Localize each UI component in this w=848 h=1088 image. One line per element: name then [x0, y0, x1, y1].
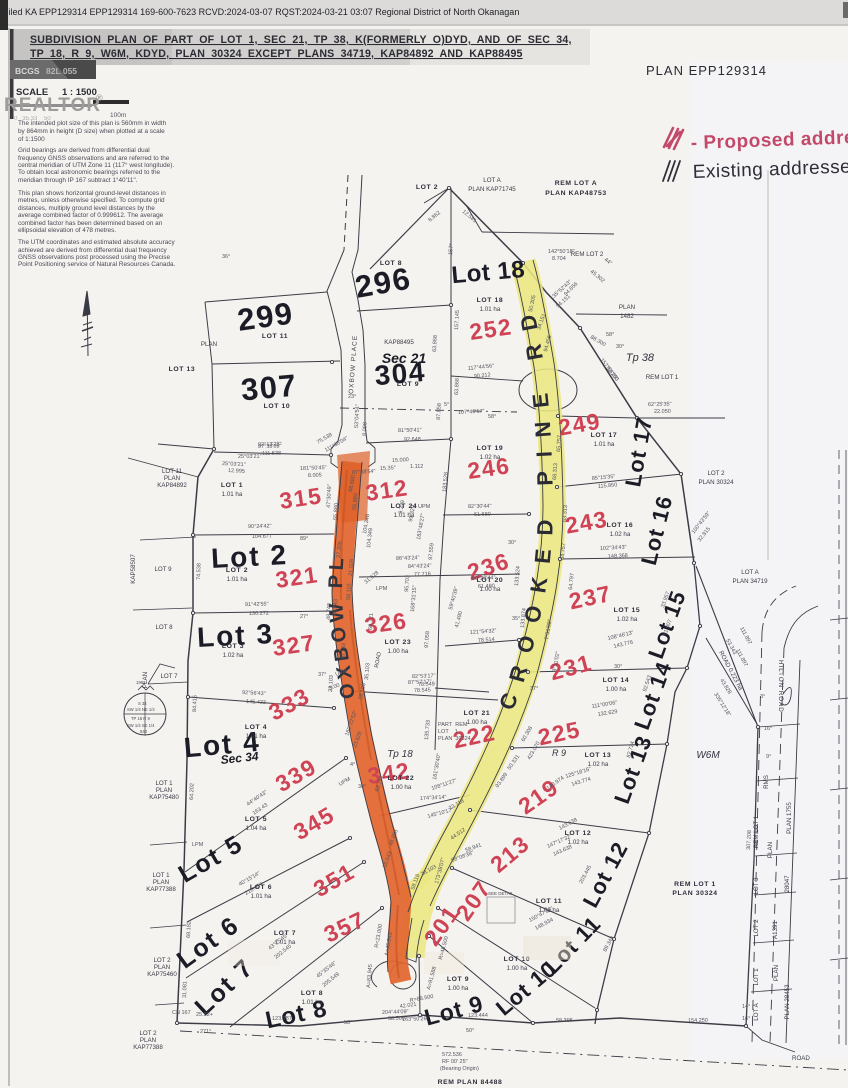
svg-text:82°53'17": 82°53'17" [412, 673, 436, 680]
svg-text:81°50'41": 81°50'41" [398, 428, 422, 434]
svg-text:UPM: UPM [418, 504, 431, 510]
svg-text:307.208: 307.208 [746, 830, 753, 850]
svg-text:181°50'45": 181°50'45" [300, 465, 327, 472]
svg-text:PLAN 34719: PLAN 34719 [732, 578, 768, 585]
svg-text:LOT 10: LOT 10 [264, 403, 291, 410]
svg-text:LPM: LPM [376, 586, 388, 592]
svg-text:PLAN: PLAN [773, 965, 780, 981]
svg-text:LOT 9: LOT 9 [397, 381, 419, 388]
svg-text:154.250: 154.250 [688, 1018, 708, 1024]
svg-text:74.538: 74.538 [196, 563, 203, 580]
svg-text:16°: 16° [764, 726, 772, 732]
svg-text:148.368: 148.368 [608, 553, 628, 560]
svg-text:78.545: 78.545 [414, 687, 431, 694]
svg-text:1.04 ha: 1.04 ha [246, 825, 267, 832]
svg-text:86°43'24": 86°43'24" [396, 555, 420, 562]
svg-text:GNSS observations post process: GNSS observations post processed using t… [18, 254, 170, 261]
svg-text:CN 167: CN 167 [172, 1010, 191, 1016]
svg-text:LOT 5: LOT 5 [245, 816, 267, 823]
svg-text:The intended plot size of this: The intended plot size of this plan is 5… [18, 120, 167, 127]
svg-text:37°: 37° [530, 686, 538, 692]
svg-text:90°20'44": 90°20'44" [472, 575, 496, 582]
svg-text:PLAN: PLAN [164, 475, 180, 482]
svg-text:15.35°: 15.35° [380, 465, 396, 472]
svg-text:LOT 15: LOT 15 [614, 607, 641, 614]
svg-text:66.721: 66.721 [368, 613, 375, 630]
svg-text:65.757: 65.757 [556, 435, 563, 452]
svg-text:9°: 9° [766, 754, 771, 760]
svg-text:PLAN 30324: PLAN 30324 [438, 736, 471, 742]
svg-text:3°: 3° [760, 694, 765, 700]
svg-text:61.490: 61.490 [478, 583, 495, 590]
svg-text:142°50'18": 142°50'18" [548, 249, 575, 255]
svg-text:1.02 ha: 1.02 ha [617, 616, 638, 623]
svg-text:LOT 13: LOT 13 [169, 366, 196, 373]
svg-text:4°: 4° [350, 762, 355, 768]
svg-text:LOT A: LOT A [741, 569, 759, 576]
svg-text:87.858: 87.858 [436, 403, 443, 420]
svg-text:91°42'55": 91°42'55" [245, 602, 269, 608]
svg-text:LOT 1: LOT 1 [155, 780, 173, 787]
svg-text:47°30'49": 47°30'49" [326, 484, 333, 508]
svg-text:307: 307 [240, 368, 299, 408]
svg-text:PLAN 30324: PLAN 30324 [672, 890, 717, 897]
svg-text:271°: 271° [200, 1029, 211, 1035]
svg-text:PLAN: PLAN [156, 787, 172, 794]
svg-text:1.01 ha: 1.01 ha [251, 893, 272, 900]
svg-text:LOT 17: LOT 17 [591, 432, 618, 439]
svg-text:To obtain local astronomic bea: To obtain local astronomic bearings refe… [18, 169, 161, 176]
svg-text:KAP75460: KAP75460 [147, 971, 177, 978]
svg-text:63.868: 63.868 [454, 378, 461, 395]
svg-text:78.514: 78.514 [478, 637, 495, 644]
svg-text:1.00 ha: 1.00 ha [391, 784, 412, 791]
svg-text:1.01 ha: 1.01 ha [227, 576, 248, 583]
svg-text:1.02 ha: 1.02 ha [480, 454, 501, 461]
svg-text:22.050: 22.050 [654, 409, 671, 415]
svg-text:LOT A: LOT A [753, 1002, 760, 1020]
svg-text:LOT 11: LOT 11 [162, 468, 183, 475]
svg-text:84.415: 84.415 [192, 695, 199, 712]
svg-text:REM LOT 1: REM LOT 1 [674, 881, 716, 888]
svg-text:23°: 23° [348, 394, 356, 400]
svg-text:LOT 21: LOT 21 [464, 710, 491, 717]
svg-text:KAP88495: KAP88495 [384, 339, 414, 346]
svg-text:LOT 23: LOT 23 [385, 639, 412, 646]
svg-text:58.110: 58.110 [346, 583, 353, 600]
svg-text:PLAN KAP71745: PLAN KAP71745 [468, 186, 516, 193]
svg-text:157°: 157° [448, 243, 455, 255]
svg-text:1.01 ha: 1.01 ha [480, 306, 501, 313]
svg-text:KAP77388: KAP77388 [133, 1044, 163, 1051]
svg-text:53°: 53° [344, 1020, 352, 1026]
svg-text:HILTON ROAD: HILTON ROAD [777, 660, 784, 713]
svg-text:LOT 8: LOT 8 [301, 990, 323, 997]
svg-text:A1391: A1391 [772, 921, 779, 939]
svg-text:REM LOT 1: REM LOT 1 [646, 374, 679, 381]
svg-text:36°: 36° [222, 254, 230, 260]
svg-text:1.00 ha: 1.00 ha [448, 985, 469, 992]
svg-text:1.01 ha: 1.01 ha [302, 999, 323, 1006]
svg-text:LOT 2: LOT 2 [153, 957, 171, 964]
svg-text:LOT 1: LOT 1 [221, 482, 243, 489]
svg-text:58°: 58° [488, 414, 496, 420]
svg-text:1.00 ha: 1.00 ha [388, 648, 409, 655]
svg-text:REM LOT 1: REM LOT 1 [753, 815, 760, 848]
svg-text:100m: 100m [110, 112, 126, 119]
svg-text:68.313: 68.313 [552, 463, 559, 480]
svg-text:1.02 ha: 1.02 ha [610, 531, 631, 538]
svg-text:PLAN: PLAN [619, 304, 635, 311]
svg-text:SUBDIVISION PLAN OF PART OF LO: SUBDIVISION PLAN OF PART OF LOT 1, SEC 2… [30, 34, 572, 46]
svg-text:KAP84892: KAP84892 [157, 482, 187, 489]
svg-text:1.112: 1.112 [410, 464, 423, 470]
svg-text:LOT 4: LOT 4 [245, 724, 267, 731]
svg-text:8.005: 8.005 [308, 473, 322, 479]
svg-text:LOT 1: LOT 1 [753, 968, 760, 986]
svg-text:LOT 2: LOT 2 [139, 1030, 157, 1037]
svg-text:LOT 3: LOT 3 [222, 643, 244, 650]
svg-text:LOT 13: LOT 13 [585, 752, 612, 759]
svg-text:LOT 11: LOT 11 [536, 898, 562, 905]
svg-text:RF 00' 25": RF 00' 25" [442, 1059, 468, 1065]
svg-text:82°30'44": 82°30'44" [468, 504, 492, 510]
svg-text:average combined factor of 0.9: average combined factor of 0.999612. The… [18, 212, 164, 219]
svg-text:TP 18 R 9: TP 18 R 9 [131, 716, 150, 721]
svg-text:8.098: 8.098 [362, 422, 369, 436]
svg-text:The UTM coordinates and estima: The UTM coordinates and estimated absolu… [18, 239, 175, 246]
svg-text:REALTOR: REALTOR [4, 95, 101, 116]
svg-text:35°: 35° [512, 616, 520, 622]
svg-text:PLAN: PLAN [142, 672, 149, 688]
svg-text:LOT 2: LOT 2 [707, 470, 725, 477]
svg-text:64.202: 64.202 [189, 783, 196, 800]
svg-text:LOT 7: LOT 7 [160, 673, 178, 680]
svg-text:1.00 ha: 1.00 ha [467, 719, 488, 726]
svg-text:1.02 ha: 1.02 ha [223, 652, 244, 659]
svg-text:This plan shows horizontal gro: This plan shows horizontal ground-level … [18, 190, 166, 197]
svg-text:62°25'35": 62°25'35" [648, 402, 672, 408]
svg-text:PLAN 30324: PLAN 30324 [698, 479, 734, 486]
svg-text:LOT 11: LOT 11 [262, 333, 288, 340]
svg-text:14°: 14° [742, 1004, 750, 1010]
svg-text:1.02 ha: 1.02 ha [588, 761, 609, 768]
svg-text:PLAN: PLAN [767, 842, 774, 858]
svg-text:123.444: 123.444 [468, 1013, 488, 1019]
svg-text:840: 840 [140, 729, 148, 734]
svg-text:25°03'21": 25°03'21" [238, 454, 262, 460]
svg-text:Grid bearings are derived from: Grid bearings are derived from different… [18, 147, 150, 154]
svg-text:5°: 5° [444, 402, 449, 408]
svg-text:PLAN: PLAN [154, 964, 170, 971]
svg-text:30°: 30° [614, 664, 622, 670]
svg-text:LPM: LPM [192, 842, 204, 848]
svg-text:63.868: 63.868 [432, 335, 439, 352]
svg-text:84°43'24": 84°43'24" [408, 563, 432, 570]
svg-text:25.32+: 25.32+ [196, 1012, 213, 1018]
svg-text:111.538: 111.538 [262, 451, 281, 457]
svg-text:LOT 19: LOT 19 [477, 445, 504, 452]
svg-text:KAP58507: KAP58507 [130, 554, 137, 584]
svg-text:LOT 2: LOT 2 [753, 919, 760, 937]
svg-text:PART REM: PART REM [438, 722, 468, 728]
svg-text:LOT 1: LOT 1 [438, 729, 458, 735]
svg-text:123.787: 123.787 [272, 1016, 292, 1022]
svg-text:SW 1/4 NE 1/4: SW 1/4 NE 1/4 [127, 707, 155, 712]
svg-text:LOT 2: LOT 2 [416, 184, 438, 191]
svg-text:PLAN KAP48753: PLAN KAP48753 [545, 190, 606, 197]
svg-text:TP 18, R 9, W6M, KDYD, PLAN 30: TP 18, R 9, W6M, KDYD, PLAN 30324 EXCEPT… [30, 48, 523, 60]
svg-text:®: ® [96, 93, 103, 103]
svg-text:LOT 22: LOT 22 [388, 775, 415, 782]
svg-text:LOT 9: LOT 9 [154, 566, 172, 573]
svg-text:LOT A: LOT A [483, 177, 501, 184]
svg-text:LOT 9: LOT 9 [447, 976, 469, 983]
svg-text:25°03'21": 25°03'21" [222, 461, 246, 468]
svg-text:157.145: 157.145 [454, 310, 461, 330]
svg-text:204°44'09": 204°44'09" [382, 1009, 409, 1016]
svg-text:30°: 30° [358, 784, 366, 790]
svg-text:BCGS: BCGS [15, 66, 40, 76]
svg-text:1.01 ha: 1.01 ha [246, 733, 267, 740]
svg-text:Sec 21: Sec 21 [382, 350, 427, 366]
svg-text:PLAN: PLAN [140, 1037, 156, 1044]
svg-text:combined factor has been deter: combined factor has been determined base… [18, 220, 163, 227]
svg-text:8.704: 8.704 [552, 256, 566, 262]
svg-text:by 864mm in height (D size) wh: by 864mm in height (D size) when plotted… [18, 128, 165, 135]
svg-text:LOT 14: LOT 14 [603, 677, 630, 684]
svg-text:145.433: 145.433 [246, 699, 266, 706]
svg-text:104.677: 104.677 [252, 534, 272, 540]
svg-text:SW 1/4 SE 1/4: SW 1/4 SE 1/4 [127, 723, 155, 728]
svg-text:58°: 58° [606, 332, 614, 338]
svg-text:REM PLAN 84488: REM PLAN 84488 [438, 1079, 503, 1086]
svg-text:PLAN: PLAN [153, 879, 169, 886]
svg-text:R 9: R 9 [552, 748, 566, 758]
svg-text:LOT 18: LOT 18 [477, 297, 504, 304]
svg-text:55.880: 55.880 [333, 503, 340, 520]
svg-text:PLAN 1755: PLAN 1755 [786, 802, 793, 834]
svg-text:50°: 50° [466, 1028, 474, 1034]
svg-text:31.081: 31.081 [182, 981, 189, 998]
svg-text:90°24'42": 90°24'42" [248, 524, 272, 530]
svg-text:S 34: S 34 [138, 701, 147, 706]
svg-text:130.272: 130.272 [249, 611, 269, 617]
svg-text:16°: 16° [742, 1016, 750, 1022]
svg-text:572.536: 572.536 [442, 1052, 462, 1058]
svg-text:28047: 28047 [784, 875, 791, 893]
svg-text:LOT 2: LOT 2 [226, 567, 248, 574]
svg-text:78.549: 78.549 [418, 681, 435, 688]
svg-text:LOT 3: LOT 3 [753, 877, 760, 895]
svg-text:92°56'43": 92°56'43" [242, 690, 266, 697]
svg-text:1482: 1482 [620, 313, 634, 320]
svg-text:89°: 89° [300, 536, 308, 542]
svg-text:12.995: 12.995 [228, 468, 245, 475]
svg-text:metres, unless otherwise speci: metres, unless otherwise specified. To c… [18, 197, 165, 204]
svg-text:(Bearing Origin): (Bearing Origin) [440, 1066, 479, 1072]
svg-text:ellipsoidal elevation of 478 m: ellipsoidal elevation of 478 metres. [18, 227, 116, 234]
svg-text:77.716: 77.716 [414, 571, 431, 578]
svg-text:LOT 16: LOT 16 [607, 522, 634, 529]
svg-text:LOT 8: LOT 8 [380, 260, 402, 267]
svg-text:97.058: 97.058 [424, 631, 431, 648]
svg-text:163°50'26": 163°50'26" [402, 1016, 429, 1023]
svg-text:1.01 ha: 1.01 ha [222, 491, 243, 498]
svg-text:KAP77388: KAP77388 [146, 886, 176, 893]
svg-text:REM LOT A: REM LOT A [555, 180, 598, 187]
svg-text:PLAN EPP129314: PLAN EPP129314 [646, 63, 767, 78]
svg-text:63.313: 63.313 [562, 505, 569, 522]
svg-text:W6M: W6M [696, 750, 720, 761]
svg-text:PLAN 28453: PLAN 28453 [784, 984, 791, 1020]
svg-text:frequency GNSS observations an: frequency GNSS observations and are refe… [18, 155, 170, 162]
svg-text:distances, multiply ground lev: distances, multiply ground level distanc… [18, 205, 155, 212]
svg-text:ROAD: ROAD [792, 1055, 810, 1062]
svg-text:meridian through IP 167 subtra: meridian through IP 167 subtract 1°40'11… [18, 176, 138, 184]
svg-text:KAP75480: KAP75480 [149, 794, 179, 801]
svg-text:53°04'54": 53°04'54" [354, 404, 361, 428]
svg-text:61.680: 61.680 [474, 512, 491, 518]
svg-text:30°: 30° [616, 344, 624, 350]
svg-text:Tp 18: Tp 18 [387, 749, 413, 760]
svg-text:27°: 27° [300, 614, 308, 620]
svg-text:LOT 1: LOT 1 [152, 872, 170, 879]
svg-text:82L 055: 82L 055 [46, 66, 77, 76]
svg-text:97°38'09": 97°38'09" [258, 444, 282, 450]
svg-text:1.00 ha: 1.00 ha [606, 686, 627, 693]
svg-text:PLAN: PLAN [201, 341, 217, 348]
svg-text:Tp 38: Tp 38 [626, 352, 655, 364]
svg-text:central meridian of UTM Zone 1: central meridian of UTM Zone 11 (117° we… [18, 161, 174, 169]
svg-text:30°: 30° [508, 540, 516, 546]
svg-text:Point Positioning service of N: Point Positioning service of Natural Res… [18, 261, 176, 268]
svg-text:RMS: RMS [763, 775, 770, 789]
svg-text:58.395: 58.395 [556, 1018, 573, 1024]
svg-text:69.182: 69.182 [186, 921, 193, 938]
svg-text:1.00 ha: 1.00 ha [507, 965, 528, 972]
svg-text:achieved are derived from diff: achieved are derived from differential d… [18, 247, 168, 254]
svg-text:37°: 37° [318, 672, 326, 678]
svg-text:15.000: 15.000 [392, 457, 409, 464]
svg-text:92.648: 92.648 [404, 437, 421, 443]
svg-text:of 1:1500: of 1:1500 [18, 136, 45, 143]
svg-text:Filed KA EPP129314 EPP129314 1: Filed KA EPP129314 EPP129314 169-600-762… [3, 7, 519, 17]
svg-text:REM LOT 2: REM LOT 2 [571, 251, 604, 258]
svg-text:87°38'54": 87°38'54" [352, 469, 376, 476]
svg-text:1.01 ha: 1.01 ha [594, 441, 615, 448]
svg-text:LOT 8: LOT 8 [155, 624, 173, 631]
